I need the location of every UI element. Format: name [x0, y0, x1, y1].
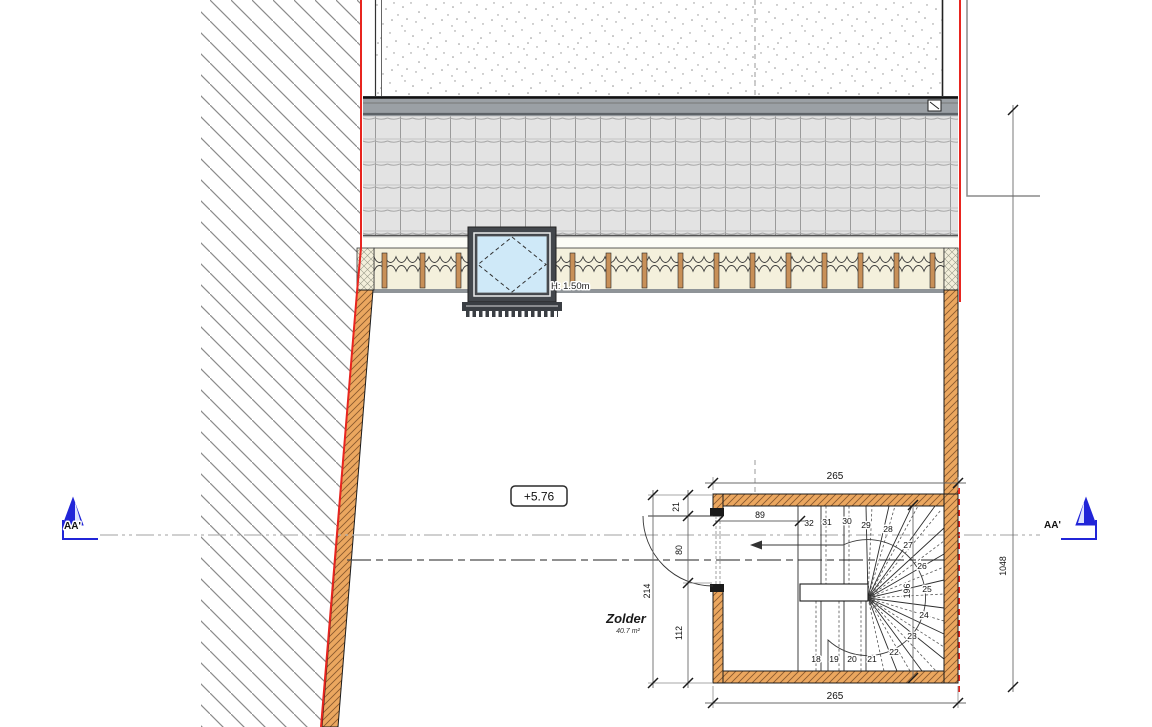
- level-marker-label: +5.76: [524, 490, 555, 504]
- section-marker-left-label: AA': [64, 521, 81, 532]
- stair-handrail: [800, 584, 868, 601]
- room-name: Zolder: [605, 611, 647, 626]
- svg-text:24: 24: [919, 610, 929, 620]
- level-marker: +5.76: [511, 486, 567, 506]
- skylight: [462, 227, 562, 314]
- svg-text:32: 32: [804, 518, 814, 528]
- roof-tile-region: [363, 116, 958, 248]
- ridge-band: [363, 96, 958, 116]
- skylight-glass: [477, 236, 547, 293]
- insulation-band: [357, 248, 958, 293]
- dim-stair-run-right: 196: [902, 584, 912, 599]
- dim-landing-depth: 89: [755, 510, 765, 520]
- room-area: 40.7 m²: [616, 628, 640, 635]
- door-jamb-bottom: [710, 584, 724, 592]
- dim-stair-width-bottom: 265: [827, 691, 844, 702]
- svg-text:18: 18: [811, 654, 821, 664]
- svg-text:28: 28: [883, 524, 893, 534]
- svg-text:30: 30: [842, 516, 852, 526]
- svg-text:22: 22: [889, 647, 899, 657]
- svg-text:21: 21: [867, 654, 877, 664]
- dim-building-depth-right: 1048: [998, 556, 1008, 576]
- svg-text:26: 26: [917, 561, 927, 571]
- svg-text:29: 29: [861, 520, 871, 530]
- svg-text:31: 31: [822, 517, 832, 527]
- dim-door-offset: 21: [671, 502, 681, 512]
- skylight-height-note: H: 1.50m: [551, 281, 590, 292]
- dim-wall-segment: 112: [674, 626, 684, 640]
- svg-text:25: 25: [922, 584, 932, 594]
- svg-text:27: 27: [903, 540, 913, 550]
- dim-stair-width-top: 265: [827, 471, 844, 482]
- section-marker-right-label: AA': [1044, 520, 1061, 531]
- floor-plan-drawing: H: 1.50m AA' AA' +5.76 Zolder 40.7 m²: [0, 0, 1152, 727]
- svg-text:23: 23: [907, 631, 917, 641]
- dim-stair-total-depth: 214: [642, 584, 652, 599]
- svg-text:19: 19: [829, 654, 839, 664]
- svg-text:20: 20: [847, 654, 857, 664]
- door-jamb-top: [710, 508, 724, 516]
- knee-wall-end-right: [944, 248, 958, 290]
- dim-door-width: 80: [674, 545, 684, 555]
